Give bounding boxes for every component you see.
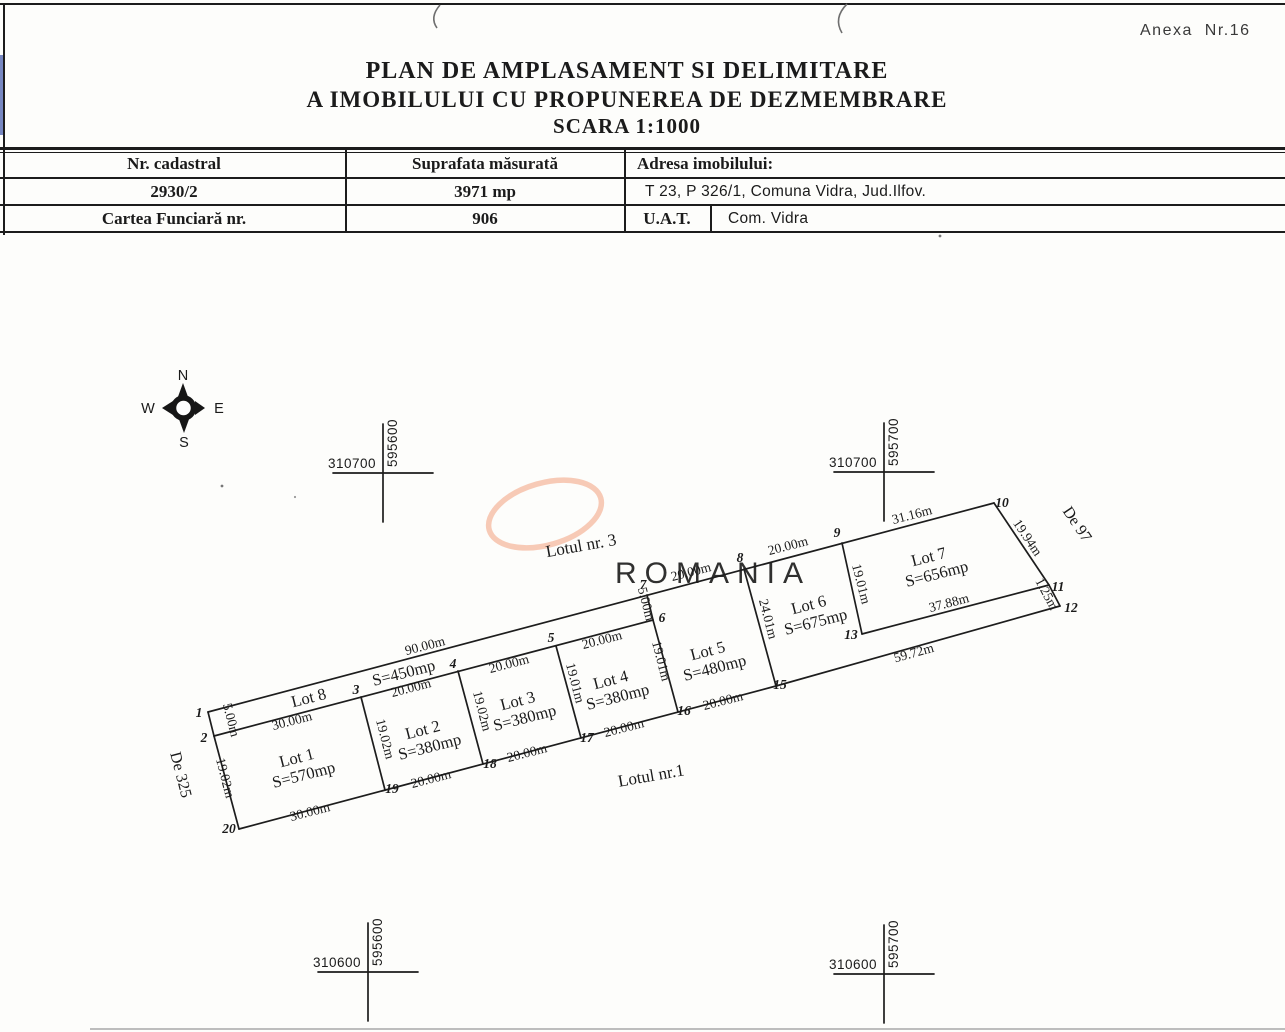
easting-label: 595700: [886, 920, 901, 968]
point-number: 3: [352, 682, 360, 697]
point-number: 2: [200, 730, 208, 745]
dimension-label: 19.01m: [649, 639, 674, 683]
dimension-label: 20.00m: [409, 766, 453, 791]
dimension-label: 20.00m: [580, 627, 624, 652]
point-number: 19: [385, 781, 399, 796]
easting-label: 595600: [385, 419, 400, 467]
point-number: 9: [834, 525, 841, 540]
dimension-label: 30.00m: [288, 799, 332, 824]
road-label: De 325: [166, 750, 194, 799]
northing-label: 310700: [328, 456, 376, 471]
northing-label: 310700: [829, 455, 877, 470]
point-number: 6: [659, 610, 666, 625]
dimension-label: 19.02m: [213, 756, 238, 800]
scanned-cadastral-document: Anexa Nr.16 PLAN DE AMPLASAMENT SI DELIM…: [0, 0, 1285, 1032]
point-number: 13: [844, 627, 858, 642]
dimension-label: 19.01m: [849, 562, 874, 606]
dimension-label: 20.00m: [505, 740, 549, 765]
northing-label: 310600: [313, 955, 361, 970]
northing-label: 310600: [829, 957, 877, 972]
dimension-label: 20.00m: [487, 651, 531, 676]
grid-cross: 310600595600: [313, 918, 418, 1021]
compass-rose: N S W E: [141, 368, 224, 451]
compass-label-s: S: [179, 435, 189, 451]
plan-labels: 90.00m30.00m30.00m20.00m20.00m20.00m20.0…: [166, 495, 1094, 836]
compass-east-arm: [195, 401, 205, 415]
point-number: 1: [196, 705, 203, 720]
road-label: De 97: [1059, 504, 1095, 546]
point-number: 15: [773, 677, 787, 692]
scan-speck: [294, 496, 296, 498]
point-number: 10: [995, 495, 1009, 510]
watermark: ROMANIA: [481, 468, 811, 590]
dimension-label: 20.00m: [701, 688, 745, 713]
point-number: 11: [1052, 579, 1065, 594]
point-number: 20: [221, 821, 236, 836]
dimension-label: 30.00m: [270, 708, 314, 733]
easting-label: 595600: [370, 918, 385, 966]
scan-squiggle: [839, 4, 847, 33]
point-number: 5: [548, 630, 555, 645]
scan-squiggle: [434, 5, 440, 28]
dimension-label: 20.00m: [602, 715, 646, 740]
point-number: 8: [737, 550, 744, 565]
point-number: 16: [677, 703, 691, 718]
dimension-label: 31.16m: [890, 502, 934, 527]
point-number: 4: [449, 656, 457, 671]
dimension-label: 24.01m: [756, 597, 781, 641]
zone-label: Lotul nr. 3: [544, 530, 618, 561]
grid-cross: 310700595600: [328, 419, 433, 522]
compass-label-e: E: [214, 401, 224, 417]
zone-label: Lotul nr.1: [616, 760, 685, 790]
compass-label-n: N: [178, 368, 188, 384]
dimension-label: 19.02m: [373, 717, 398, 761]
boundary-line: [208, 712, 214, 736]
dimension-label: 5.00m: [635, 585, 658, 622]
point-number: 12: [1064, 600, 1078, 615]
compass-label-w: W: [141, 401, 155, 417]
scan-speck: [221, 485, 224, 488]
compass-ring: [174, 398, 194, 418]
scan-speck: [939, 235, 942, 238]
point-number: 18: [483, 756, 497, 771]
grid-cross: 310600595700: [829, 920, 934, 1023]
dimension-label: 59.72m: [892, 640, 936, 666]
point-number: 17: [580, 730, 595, 745]
easting-label: 595700: [886, 418, 901, 466]
cadastral-plan-drawing: ROMANIA N S W E 310700595600310700595700…: [0, 0, 1285, 1032]
scan-marks: [221, 4, 942, 498]
